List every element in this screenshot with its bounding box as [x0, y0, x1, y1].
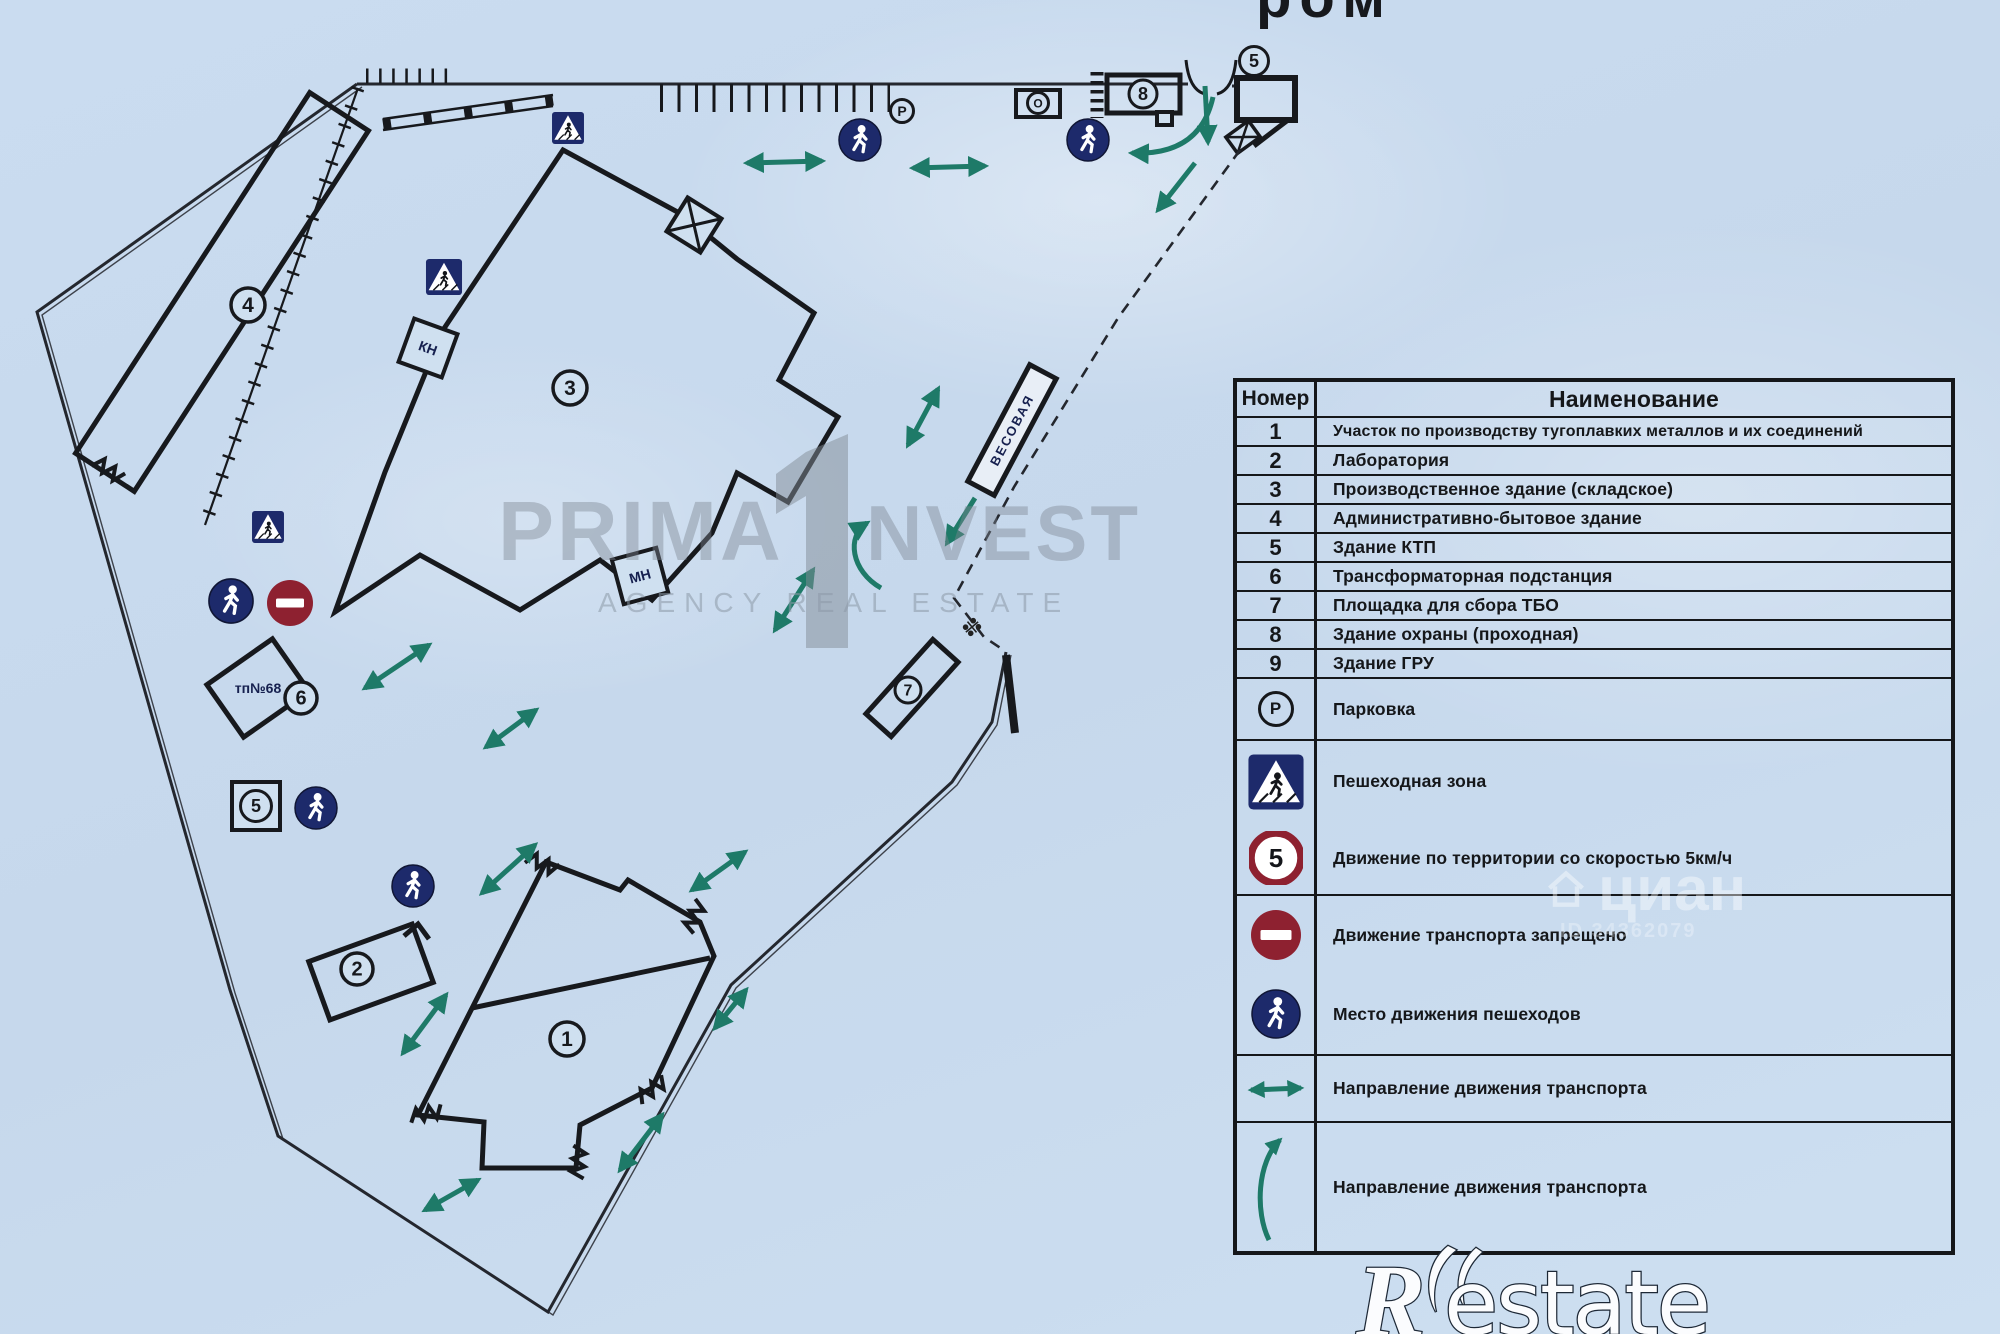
pedestrian-crossing-icon — [1247, 753, 1305, 811]
speed-limit-5-icon: 5 — [1249, 831, 1303, 885]
svg-text:2: 2 — [351, 959, 362, 981]
svg-text:8: 8 — [1138, 84, 1148, 104]
legend-row-5: 5 Здание КТП — [1237, 532, 1951, 561]
legend-header-name: Наименование — [1317, 382, 1951, 416]
legend-row-direction: Направление движения транспорта — [1237, 1054, 1951, 1121]
svg-text:NVEST: NVEST — [866, 489, 1141, 577]
svg-text:3: 3 — [564, 377, 576, 400]
mn-box: МН — [612, 548, 668, 604]
svg-text:7: 7 — [904, 683, 913, 700]
svg-text:4: 4 — [242, 294, 254, 317]
building-6-tp68: тп№68 6 — [207, 639, 317, 737]
parking-sign: Р — [891, 100, 914, 123]
svg-text:6: 6 — [295, 688, 306, 710]
legend-row-speed5: 5 Движение по территории со скоростью 5к… — [1237, 822, 1951, 894]
kn-box: КН — [399, 319, 458, 378]
svg-text:R: R — [1355, 1244, 1425, 1334]
pedestrian-crossing-sign — [252, 511, 284, 543]
weighbridge: ВЕСОВАЯ — [968, 365, 1056, 496]
svg-text:О: О — [1033, 97, 1042, 111]
pedestrian-zone-icon — [1251, 989, 1301, 1039]
primainvest-watermark: PRIMA NVEST AGENCY REAL ESTATE — [498, 434, 1141, 648]
weighbridge-road — [954, 150, 1240, 651]
pedestrian-zone-sign — [209, 579, 253, 623]
legend-table: Номер Наименование 1 Участок по производ… — [1233, 378, 1955, 1255]
no-entry-sign — [267, 580, 313, 626]
svg-text:Р: Р — [897, 103, 906, 119]
pedestrian-zone-sign — [392, 865, 434, 907]
building-2: 2 — [309, 924, 434, 1020]
entrance-gate — [1186, 60, 1236, 94]
building-5-ktp: 5 — [1237, 47, 1295, 121]
svg-text:estate: estate — [1444, 1252, 1709, 1334]
svg-text:5: 5 — [251, 796, 261, 816]
svg-text:1: 1 — [561, 1028, 573, 1051]
legend-row-8: 8 Здание охраны (проходная) — [1237, 619, 1951, 648]
pedestrian-zone-sign — [295, 787, 337, 829]
legend-row-no-entry: Движение транспорта запрещено — [1237, 894, 1951, 974]
building-7: 7 — [866, 639, 958, 736]
o-box: О — [1016, 90, 1060, 117]
curved-arrow-icon — [1253, 1128, 1299, 1246]
no-entry-icon — [1250, 909, 1302, 961]
parking-icon: Р — [1258, 691, 1294, 727]
speed-5-square-sign: 5 — [232, 782, 280, 830]
inner-fence — [205, 88, 358, 525]
legend-row-direction-curved: Направление движения транспорта — [1237, 1121, 1951, 1251]
legend-row-6: 6 Трансформаторная подстанция — [1237, 561, 1951, 590]
building-3: КН МН 3 — [335, 150, 838, 612]
gate-post-box — [1226, 120, 1288, 153]
legend-header-number: Номер — [1237, 382, 1317, 416]
restate-logo: R estate — [1352, 1244, 2000, 1334]
svg-text:5: 5 — [1268, 843, 1282, 873]
legend-row-9: 9 Здание ГРУ — [1237, 648, 1951, 677]
legend-header: Номер Наименование — [1237, 382, 1951, 416]
legend-row-4: 4 Административно-бытовое здание — [1237, 503, 1951, 532]
legend-row-crossing: Пешеходная зона — [1237, 739, 1951, 822]
legend-row-parking: Р Парковка — [1237, 677, 1951, 739]
building-4: 4 — [76, 93, 369, 492]
canopy-walkway — [383, 95, 553, 130]
building-1: 1 — [409, 851, 714, 1179]
building-8-checkpoint: 8 — [1097, 72, 1180, 125]
svg-text:тп№68: тп№68 — [235, 680, 282, 696]
pedestrian-zone-sign — [1067, 119, 1109, 161]
building-9 — [1006, 655, 1015, 733]
legend-row-1: 1 Участок по производству тугоплавких ме… — [1237, 416, 1951, 445]
page-title-fragment: ром — [1256, 0, 1456, 30]
legend-row-7: 7 Площадка для сбора ТБО — [1237, 590, 1951, 619]
site-plan-photo: Р 4 КН МН — [0, 0, 2000, 1334]
legend-row-3: 3 Производственное здание (складское) — [1237, 474, 1951, 503]
legend-row-ped-zone: Место движения пешеходов — [1237, 974, 1951, 1054]
legend-row-2: 2 Лаборатория — [1237, 445, 1951, 474]
pedestrian-crossing-sign — [552, 112, 584, 144]
pedestrian-crossing-sign — [426, 259, 462, 295]
pedestrian-zone-sign — [839, 119, 881, 161]
direction-arrow-icon — [1243, 1077, 1309, 1101]
svg-text:5: 5 — [1249, 51, 1259, 71]
